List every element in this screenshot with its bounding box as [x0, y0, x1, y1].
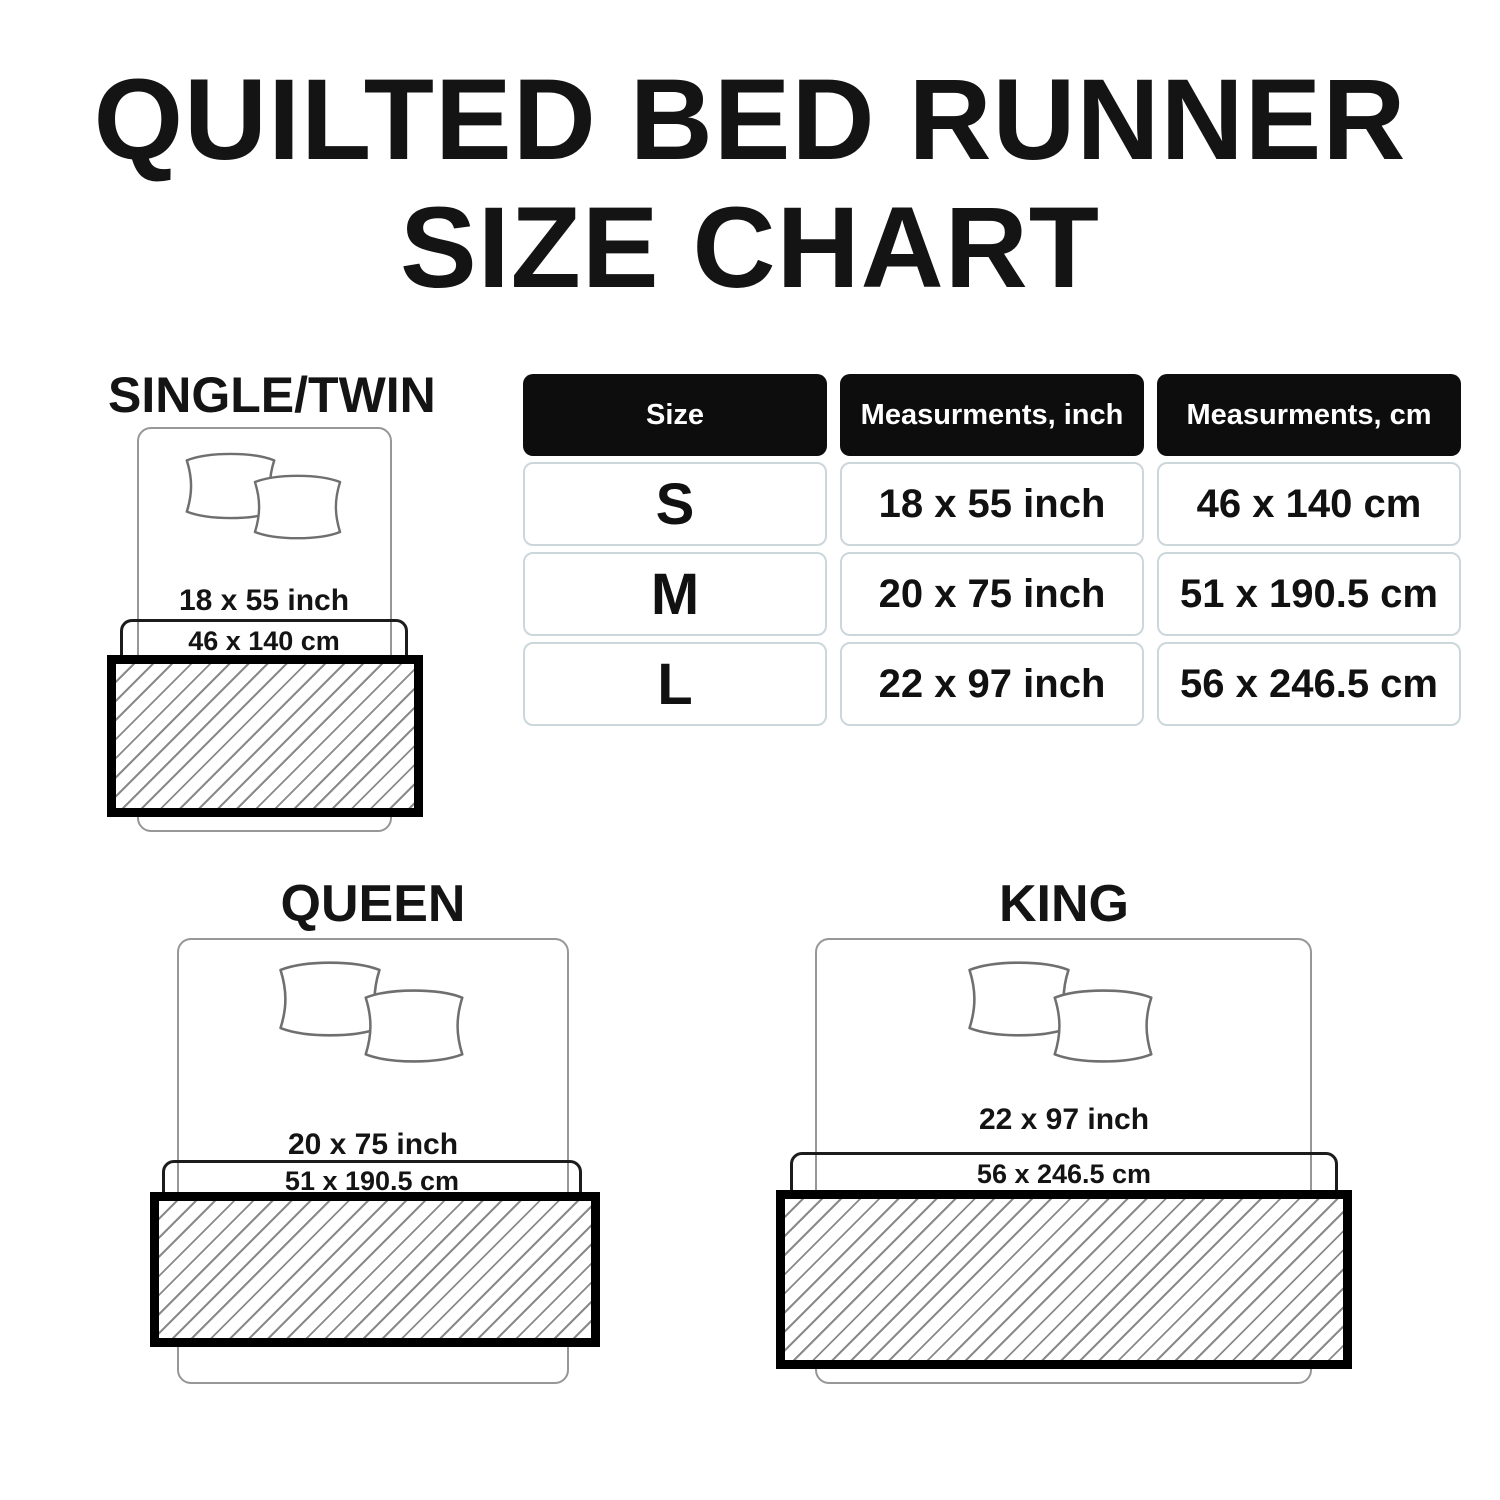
single-twin-runner-hatch [107, 655, 423, 817]
single-twin-cm-dimension: 46 x 140 cm [120, 628, 408, 655]
queen-cm-dimension: 51 x 190.5 cm [162, 1168, 582, 1195]
single-twin-label: SINGLE/TWIN [108, 370, 422, 420]
king-label: KING [864, 878, 1264, 930]
table-header-size: Size [523, 374, 827, 456]
page-title-line2: SIZE CHART [0, 184, 1500, 312]
size-table: Size Measurments, inch Measurments, cm S… [523, 374, 1461, 726]
pillow-icon [1039, 984, 1167, 1068]
single-twin-inch-dimension: 18 x 55 inch [114, 586, 414, 616]
table-cell-cm-m: 51 x 190.5 cm [1157, 552, 1461, 636]
king-runner-hatch [776, 1190, 1352, 1369]
page-title: QUILTED BED RUNNER SIZE CHART [0, 56, 1500, 312]
table-header-cm: Measurments, cm [1157, 374, 1461, 456]
page-title-line1: QUILTED BED RUNNER [0, 56, 1500, 184]
pillow-icon [245, 470, 350, 544]
table-cell-size-s: S [523, 462, 827, 546]
pillow-icon [350, 984, 478, 1068]
queen-runner-hatch [150, 1192, 600, 1347]
table-cell-size-m: M [523, 552, 827, 636]
table-cell-inch-m: 20 x 75 inch [840, 552, 1144, 636]
table-header-inch: Measurments, inch [840, 374, 1144, 456]
table-cell-inch-s: 18 x 55 inch [840, 462, 1144, 546]
size-chart-infographic: QUILTED BED RUNNER SIZE CHART SINGLE/TWI… [0, 0, 1500, 1500]
table-cell-inch-l: 22 x 97 inch [840, 642, 1144, 726]
table-cell-size-l: L [523, 642, 827, 726]
table-cell-cm-s: 46 x 140 cm [1157, 462, 1461, 546]
king-cm-dimension: 56 x 246.5 cm [790, 1161, 1338, 1188]
queen-label: QUEEN [173, 878, 573, 930]
table-cell-cm-l: 56 x 246.5 cm [1157, 642, 1461, 726]
king-inch-dimension: 22 x 97 inch [914, 1105, 1214, 1135]
queen-inch-dimension: 20 x 75 inch [223, 1130, 523, 1160]
